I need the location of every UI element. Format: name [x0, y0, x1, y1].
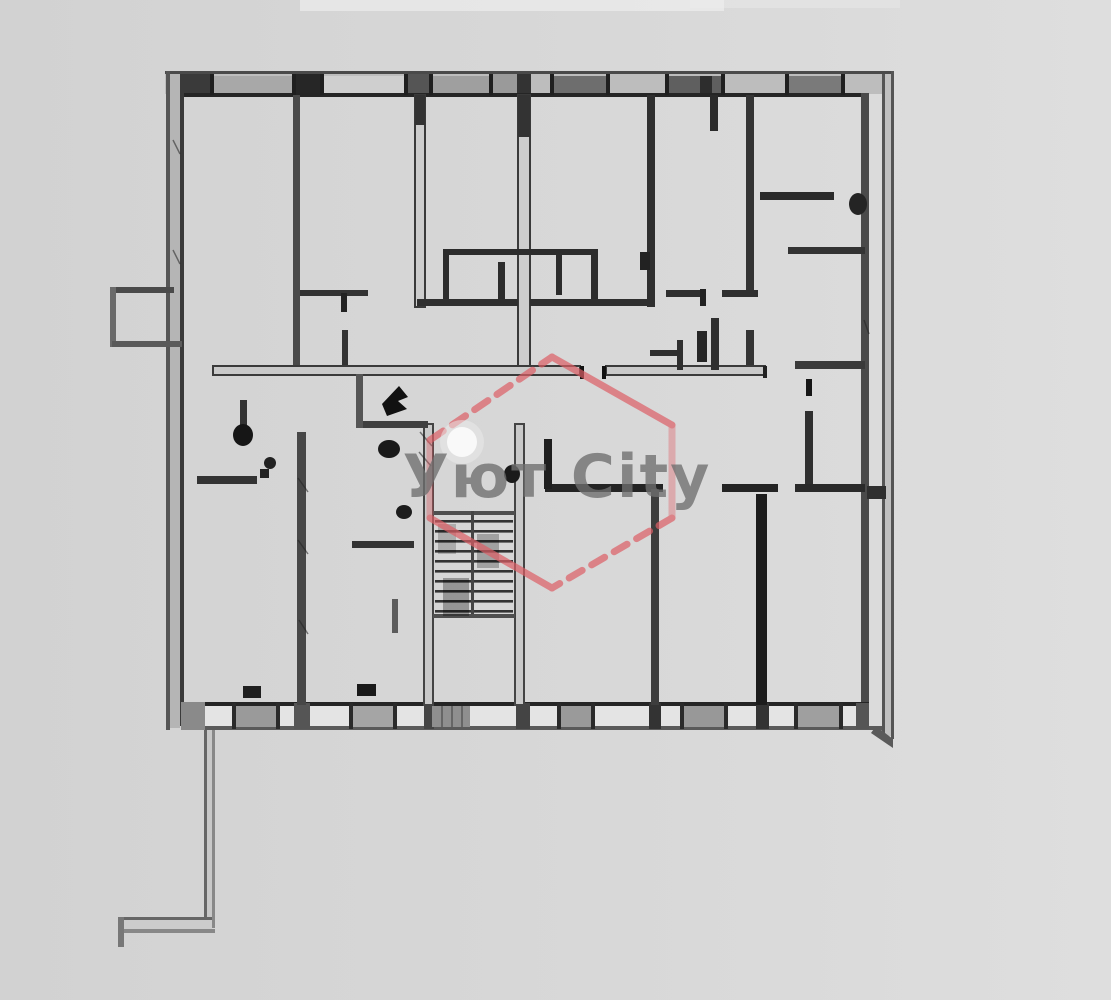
window	[665, 74, 725, 95]
entrance-porch	[432, 706, 470, 727]
window	[349, 703, 397, 729]
window	[320, 74, 408, 95]
scan-light-streak	[300, 0, 724, 11]
watermark-text: Уют City	[403, 442, 712, 512]
window	[680, 703, 728, 729]
window	[210, 74, 296, 95]
floor-plan-drawing: Уют City	[0, 0, 1111, 1000]
window	[232, 703, 280, 729]
window	[557, 703, 595, 729]
window	[785, 74, 845, 95]
window	[550, 74, 610, 95]
window	[794, 703, 843, 729]
floorplan-screenshot: Уют City	[0, 0, 1111, 1000]
scan-light-streak2	[690, 0, 900, 8]
window	[429, 74, 493, 95]
